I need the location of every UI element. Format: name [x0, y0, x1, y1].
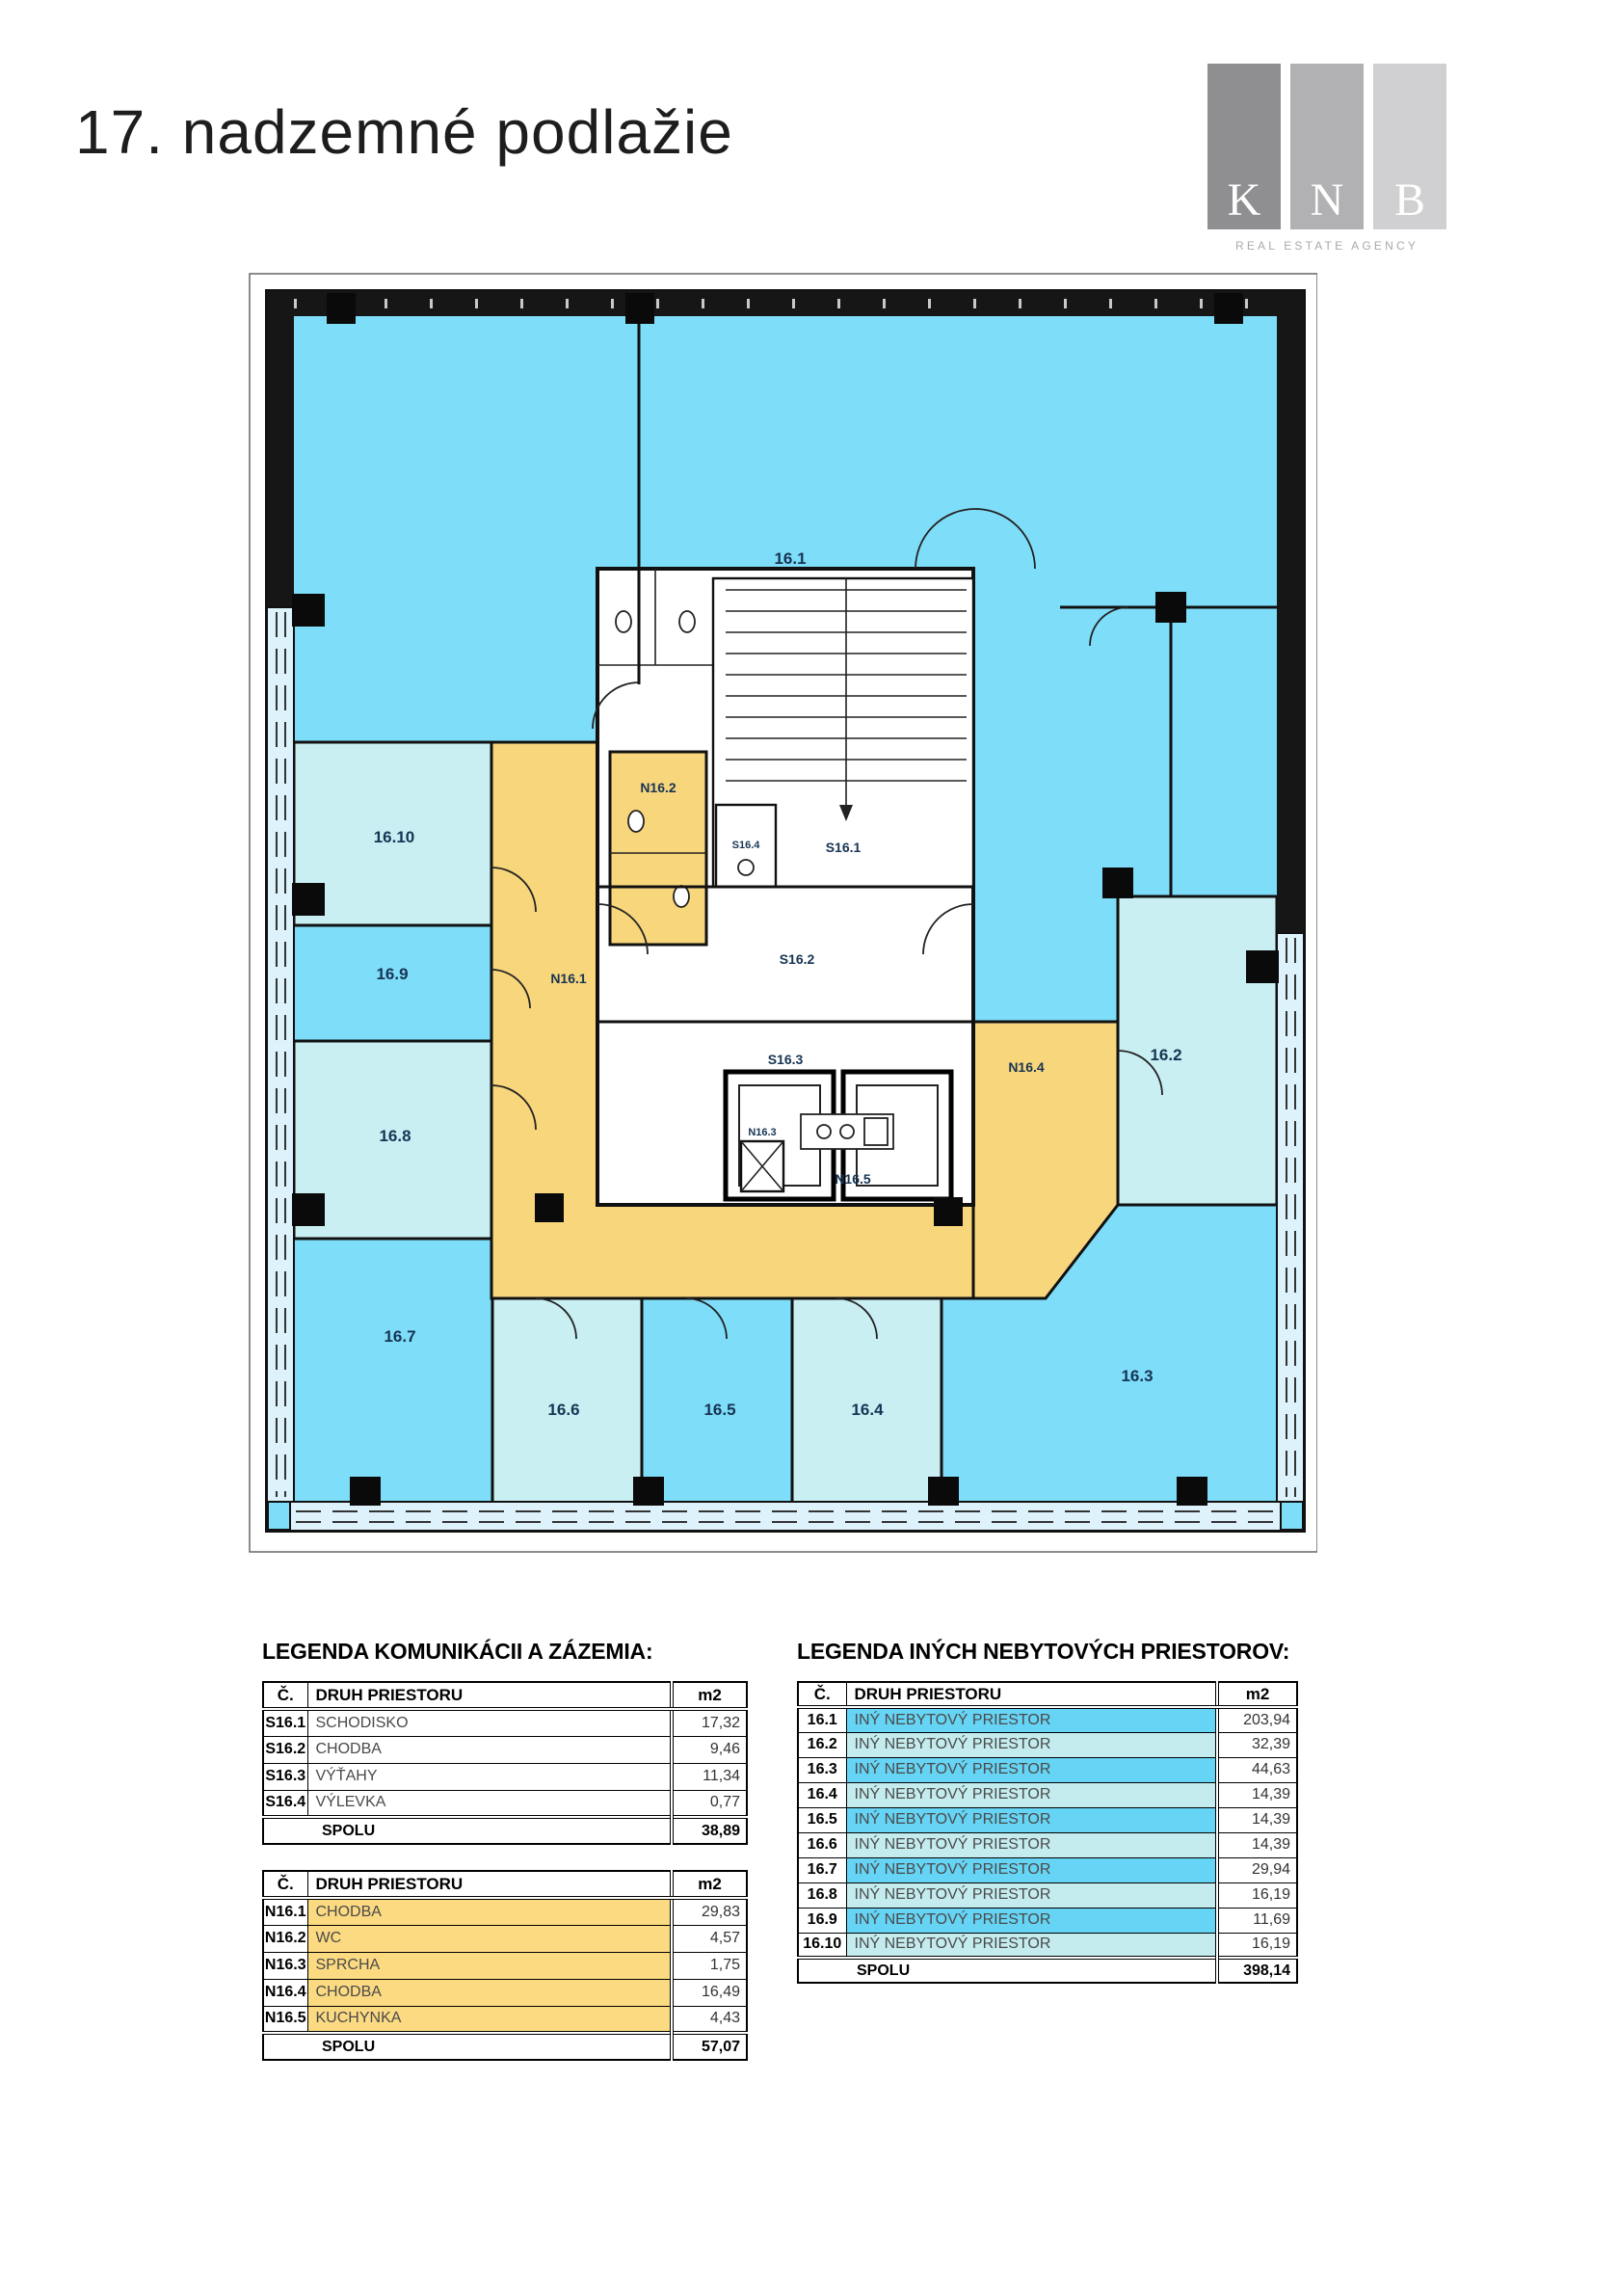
cell-area: 29,83	[672, 1898, 747, 1925]
cell-area: 16,19	[1217, 1882, 1297, 1908]
page: { "page": { "title": "17. nadzemné podla…	[0, 0, 1618, 2296]
cell-num: 16.3	[798, 1757, 846, 1782]
room-label: S16.2	[780, 951, 815, 967]
table-row: S16.1 SCHODISKO 17,32	[263, 1709, 747, 1736]
total-value: 398,14	[1217, 1958, 1297, 1983]
room-label: S16.4	[732, 840, 761, 851]
cell-num: 16.5	[798, 1807, 846, 1832]
legend-left-title: LEGENDA KOMUNIKÁCII A ZÁZEMIA:	[262, 1639, 652, 1665]
legend-right-title: LEGENDA INÝCH NEBYTOVÝCH PRIESTOROV:	[797, 1639, 1289, 1665]
col-header-type: DRUH PRIESTORU	[307, 1871, 672, 1898]
cell-type: VÝLEVKA	[307, 1790, 672, 1817]
table-row: 16.8 INÝ NEBYTOVÝ PRIESTOR 16,19	[798, 1882, 1297, 1908]
logo-columns: K N B	[1207, 64, 1446, 229]
cell-area: 14,39	[1217, 1782, 1297, 1807]
col-header-num: Č.	[263, 1682, 307, 1709]
cell-num: S16.3	[263, 1763, 307, 1790]
total-row: SPOLU 38,89	[263, 1817, 747, 1844]
table-row: 16.6 INÝ NEBYTOVÝ PRIESTOR 14,39	[798, 1832, 1297, 1857]
cell-type: KUCHYNKA	[307, 2006, 672, 2033]
room-label: 16.5	[703, 1401, 735, 1419]
page-title: 17. nadzemné podlažie	[75, 96, 1135, 168]
cell-num: S16.2	[263, 1736, 307, 1763]
cell-num: 16.1	[798, 1707, 846, 1732]
cell-area: 14,39	[1217, 1807, 1297, 1832]
table-row: 16.7 INÝ NEBYTOVÝ PRIESTOR 29,94	[798, 1857, 1297, 1882]
cell-type: INÝ NEBYTOVÝ PRIESTOR	[846, 1707, 1217, 1732]
logo-tagline: REAL ESTATE AGENCY	[1207, 239, 1446, 253]
cell-area: 14,39	[1217, 1832, 1297, 1857]
cell-type: SCHODISKO	[307, 1709, 672, 1736]
table-row: 16.1 INÝ NEBYTOVÝ PRIESTOR 203,94	[798, 1707, 1297, 1732]
total-value: 38,89	[672, 1817, 747, 1844]
cell-type: INÝ NEBYTOVÝ PRIESTOR	[846, 1857, 1217, 1882]
total-row: SPOLU 398,14	[798, 1958, 1297, 1983]
logo-letter-b: B	[1394, 177, 1425, 224]
room-label: 16.10	[374, 828, 415, 846]
floor-plan: 16.1 16.2 16.3 16.4 16.5 16.6 16.7 16.8 …	[244, 268, 1317, 1554]
cell-type: VÝŤAHY	[307, 1763, 672, 1790]
room-label: 16.2	[1150, 1046, 1181, 1064]
cell-type: WC	[307, 1925, 672, 1952]
cell-area: 11,34	[672, 1763, 747, 1790]
room-label: N16.1	[550, 971, 587, 986]
table-row: N16.2 WC 4,57	[263, 1925, 747, 1952]
room-label: S16.3	[768, 1052, 804, 1067]
room-label: 16.9	[376, 965, 408, 983]
total-value: 57,07	[672, 2033, 747, 2060]
header-row: Č. DRUH PRIESTORU m2	[263, 1682, 747, 1709]
cell-area: 16,49	[672, 1979, 747, 2006]
cell-num: N16.1	[263, 1898, 307, 1925]
legend-table-communications: Č. DRUH PRIESTORU m2 S16.1 SCHODISKO 17,…	[262, 1681, 748, 1845]
table-row: 16.10 INÝ NEBYTOVÝ PRIESTOR 16,19	[798, 1933, 1297, 1958]
cell-area: 0,77	[672, 1790, 747, 1817]
cell-area: 4,57	[672, 1925, 747, 1952]
room-label: N16.2	[640, 780, 676, 795]
cell-num: 16.7	[798, 1857, 846, 1882]
cell-num: N16.2	[263, 1925, 307, 1952]
cell-type: INÝ NEBYTOVÝ PRIESTOR	[846, 1882, 1217, 1908]
cell-num: 16.2	[798, 1732, 846, 1757]
cell-type: INÝ NEBYTOVÝ PRIESTOR	[846, 1832, 1217, 1857]
logo-column-k: K	[1207, 64, 1281, 229]
table-row: N16.4 CHODBA 16,49	[263, 1979, 747, 2006]
header-row: Č. DRUH PRIESTORU m2	[263, 1871, 747, 1898]
table-row: 16.4 INÝ NEBYTOVÝ PRIESTOR 14,39	[798, 1782, 1297, 1807]
room-label: N16.4	[1008, 1059, 1045, 1075]
cell-num: N16.4	[263, 1979, 307, 2006]
cell-num: 16.10	[798, 1933, 846, 1958]
table-row: 16.2 INÝ NEBYTOVÝ PRIESTOR 32,39	[798, 1732, 1297, 1757]
room-label: 16.7	[384, 1327, 415, 1346]
cell-num: 16.4	[798, 1782, 846, 1807]
cell-type: SPRCHA	[307, 1952, 672, 1979]
header-row: Č. DRUH PRIESTORU m2	[798, 1682, 1297, 1707]
col-header-num: Č.	[263, 1871, 307, 1898]
cell-area: 1,75	[672, 1952, 747, 1979]
legend-table-other-premises: Č. DRUH PRIESTORU m2 16.1 INÝ NEBYTOVÝ P…	[797, 1681, 1298, 1984]
cell-num: S16.1	[263, 1709, 307, 1736]
cell-area: 11,69	[1217, 1908, 1297, 1933]
total-label: SPOLU	[798, 1958, 1217, 1983]
legend-table-amenities: Č. DRUH PRIESTORU m2 N16.1 CHODBA 29,83 …	[262, 1870, 748, 2061]
room-16-2	[1118, 896, 1277, 1205]
col-header-type: DRUH PRIESTORU	[307, 1682, 672, 1709]
table-row: N16.3 SPRCHA 1,75	[263, 1952, 747, 1979]
col-header-num: Č.	[798, 1682, 846, 1707]
col-header-area: m2	[672, 1682, 747, 1709]
cell-type: CHODBA	[307, 1898, 672, 1925]
cell-type: CHODBA	[307, 1979, 672, 2006]
room-label: 16.8	[379, 1127, 411, 1145]
total-row: SPOLU 57,07	[263, 2033, 747, 2060]
cell-type: INÝ NEBYTOVÝ PRIESTOR	[846, 1908, 1217, 1933]
room-label: 16.3	[1121, 1367, 1153, 1385]
cell-area: 9,46	[672, 1736, 747, 1763]
cell-num: S16.4	[263, 1790, 307, 1817]
cell-area: 29,94	[1217, 1857, 1297, 1882]
total-label: SPOLU	[263, 2033, 672, 2060]
cell-type: INÝ NEBYTOVÝ PRIESTOR	[846, 1757, 1217, 1782]
knb-logo: K N B REAL ESTATE AGENCY	[1207, 64, 1446, 253]
cell-num: N16.5	[263, 2006, 307, 2033]
col-header-type: DRUH PRIESTORU	[846, 1682, 1217, 1707]
room-label: 16.1	[774, 549, 806, 568]
cell-area: 44,63	[1217, 1757, 1297, 1782]
table-row: S16.4 VÝLEVKA 0,77	[263, 1790, 747, 1817]
table-row: S16.3 VÝŤAHY 11,34	[263, 1763, 747, 1790]
table-row: 16.5 INÝ NEBYTOVÝ PRIESTOR 14,39	[798, 1807, 1297, 1832]
cell-type: INÝ NEBYTOVÝ PRIESTOR	[846, 1807, 1217, 1832]
total-label: SPOLU	[263, 1817, 672, 1844]
cell-area: 32,39	[1217, 1732, 1297, 1757]
cell-type: INÝ NEBYTOVÝ PRIESTOR	[846, 1782, 1217, 1807]
logo-column-b: B	[1373, 64, 1446, 229]
cell-area: 203,94	[1217, 1707, 1297, 1732]
cell-area: 16,19	[1217, 1933, 1297, 1958]
table-row: N16.1 CHODBA 29,83	[263, 1898, 747, 1925]
cell-num: N16.3	[263, 1952, 307, 1979]
logo-letter-k: K	[1228, 177, 1261, 224]
cell-num: 16.9	[798, 1908, 846, 1933]
cell-area: 4,43	[672, 2006, 747, 2033]
plan-core	[597, 569, 973, 1205]
cell-num: 16.6	[798, 1832, 846, 1857]
room-label: 16.4	[851, 1401, 884, 1419]
table-row: 16.3 INÝ NEBYTOVÝ PRIESTOR 44,63	[798, 1757, 1297, 1782]
room-label: N16.5	[835, 1171, 871, 1187]
table-row: S16.2 CHODBA 9,46	[263, 1736, 747, 1763]
col-header-area: m2	[1217, 1682, 1297, 1707]
cell-type: INÝ NEBYTOVÝ PRIESTOR	[846, 1732, 1217, 1757]
table-row: N16.5 KUCHYNKA 4,43	[263, 2006, 747, 2033]
logo-column-n: N	[1290, 64, 1364, 229]
cell-type: CHODBA	[307, 1736, 672, 1763]
logo-letter-n: N	[1311, 177, 1344, 224]
room-label: 16.6	[547, 1401, 579, 1419]
cell-num: 16.8	[798, 1882, 846, 1908]
room-label: S16.1	[826, 840, 862, 855]
cell-type: INÝ NEBYTOVÝ PRIESTOR	[846, 1933, 1217, 1958]
cell-area: 17,32	[672, 1709, 747, 1736]
room-label: N16.3	[748, 1127, 776, 1138]
table-row: 16.9 INÝ NEBYTOVÝ PRIESTOR 11,69	[798, 1908, 1297, 1933]
col-header-area: m2	[672, 1871, 747, 1898]
